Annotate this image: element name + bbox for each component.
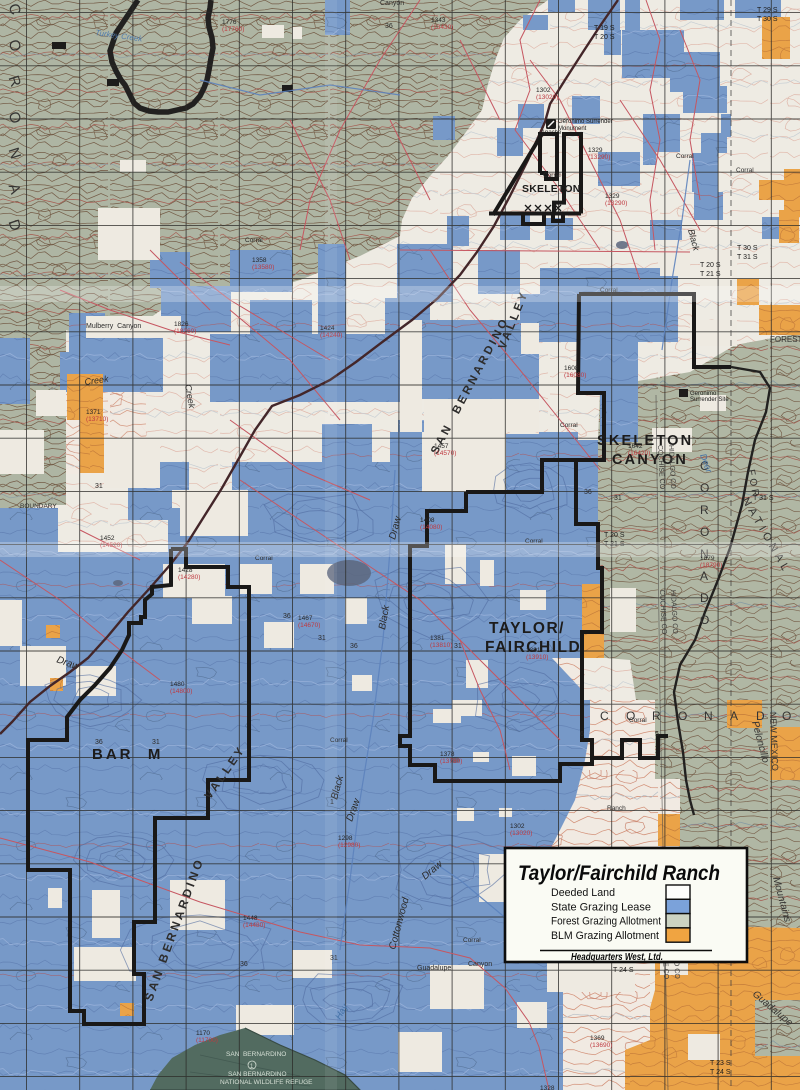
svg-text:Headquarters West, Ltd.: Headquarters West, Ltd. [571, 951, 663, 963]
svg-text:BLM Grazing Allotment: BLM Grazing Allotment [551, 930, 659, 942]
svg-text:Deeded Land: Deeded Land [551, 887, 615, 899]
svg-text:State Grazing Lease: State Grazing Lease [551, 901, 651, 913]
svg-text:Taylor/Fairchild Ranch: Taylor/Fairchild Ranch [518, 862, 720, 885]
svg-text:Forest Grazing Allotment: Forest Grazing Allotment [551, 916, 661, 928]
